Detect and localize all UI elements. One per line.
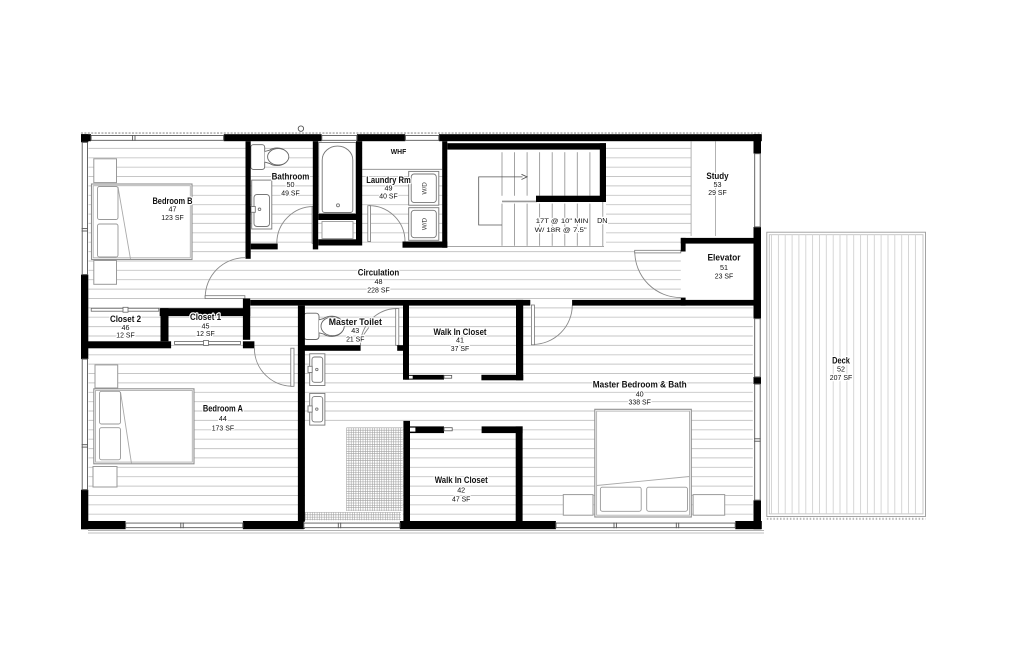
svg-text:12 SF: 12 SF (116, 331, 135, 340)
svg-text:40 SF: 40 SF (379, 191, 398, 200)
svg-text:W/D: W/D (421, 182, 428, 195)
svg-text:228 SF: 228 SF (367, 286, 390, 295)
svg-text:Bedroom A: Bedroom A (203, 403, 244, 413)
svg-text:338 SF: 338 SF (629, 398, 652, 407)
svg-text:W/ 18R @ 7.5": W/ 18R @ 7.5" (535, 227, 588, 234)
svg-text:29 SF: 29 SF (708, 188, 727, 197)
svg-text:Elevator: Elevator (707, 253, 741, 263)
svg-text:17T @ 10" MIN: 17T @ 10" MIN (536, 218, 589, 225)
svg-text:49 SF: 49 SF (281, 189, 300, 198)
svg-text:207 SF: 207 SF (830, 373, 853, 382)
svg-text:37 SF: 37 SF (451, 344, 470, 353)
svg-text:23 SF: 23 SF (715, 272, 734, 281)
svg-text:Master Bedroom & Bath: Master Bedroom & Bath (593, 380, 687, 390)
svg-text:43: 43 (351, 326, 359, 335)
svg-text:42: 42 (457, 485, 465, 494)
svg-text:47 SF: 47 SF (452, 495, 471, 504)
svg-text:Walk In Closet: Walk In Closet (435, 475, 488, 485)
svg-text:WHF: WHF (391, 147, 407, 156)
svg-text:173 SF: 173 SF (212, 423, 235, 432)
svg-text:44: 44 (219, 414, 227, 423)
svg-text:51: 51 (720, 263, 728, 272)
svg-text:W/D: W/D (421, 217, 428, 230)
svg-text:12 SF: 12 SF (196, 329, 215, 338)
svg-text:21 SF: 21 SF (346, 335, 365, 344)
svg-text:123 SF: 123 SF (161, 213, 184, 222)
svg-text:DN: DN (597, 216, 607, 225)
